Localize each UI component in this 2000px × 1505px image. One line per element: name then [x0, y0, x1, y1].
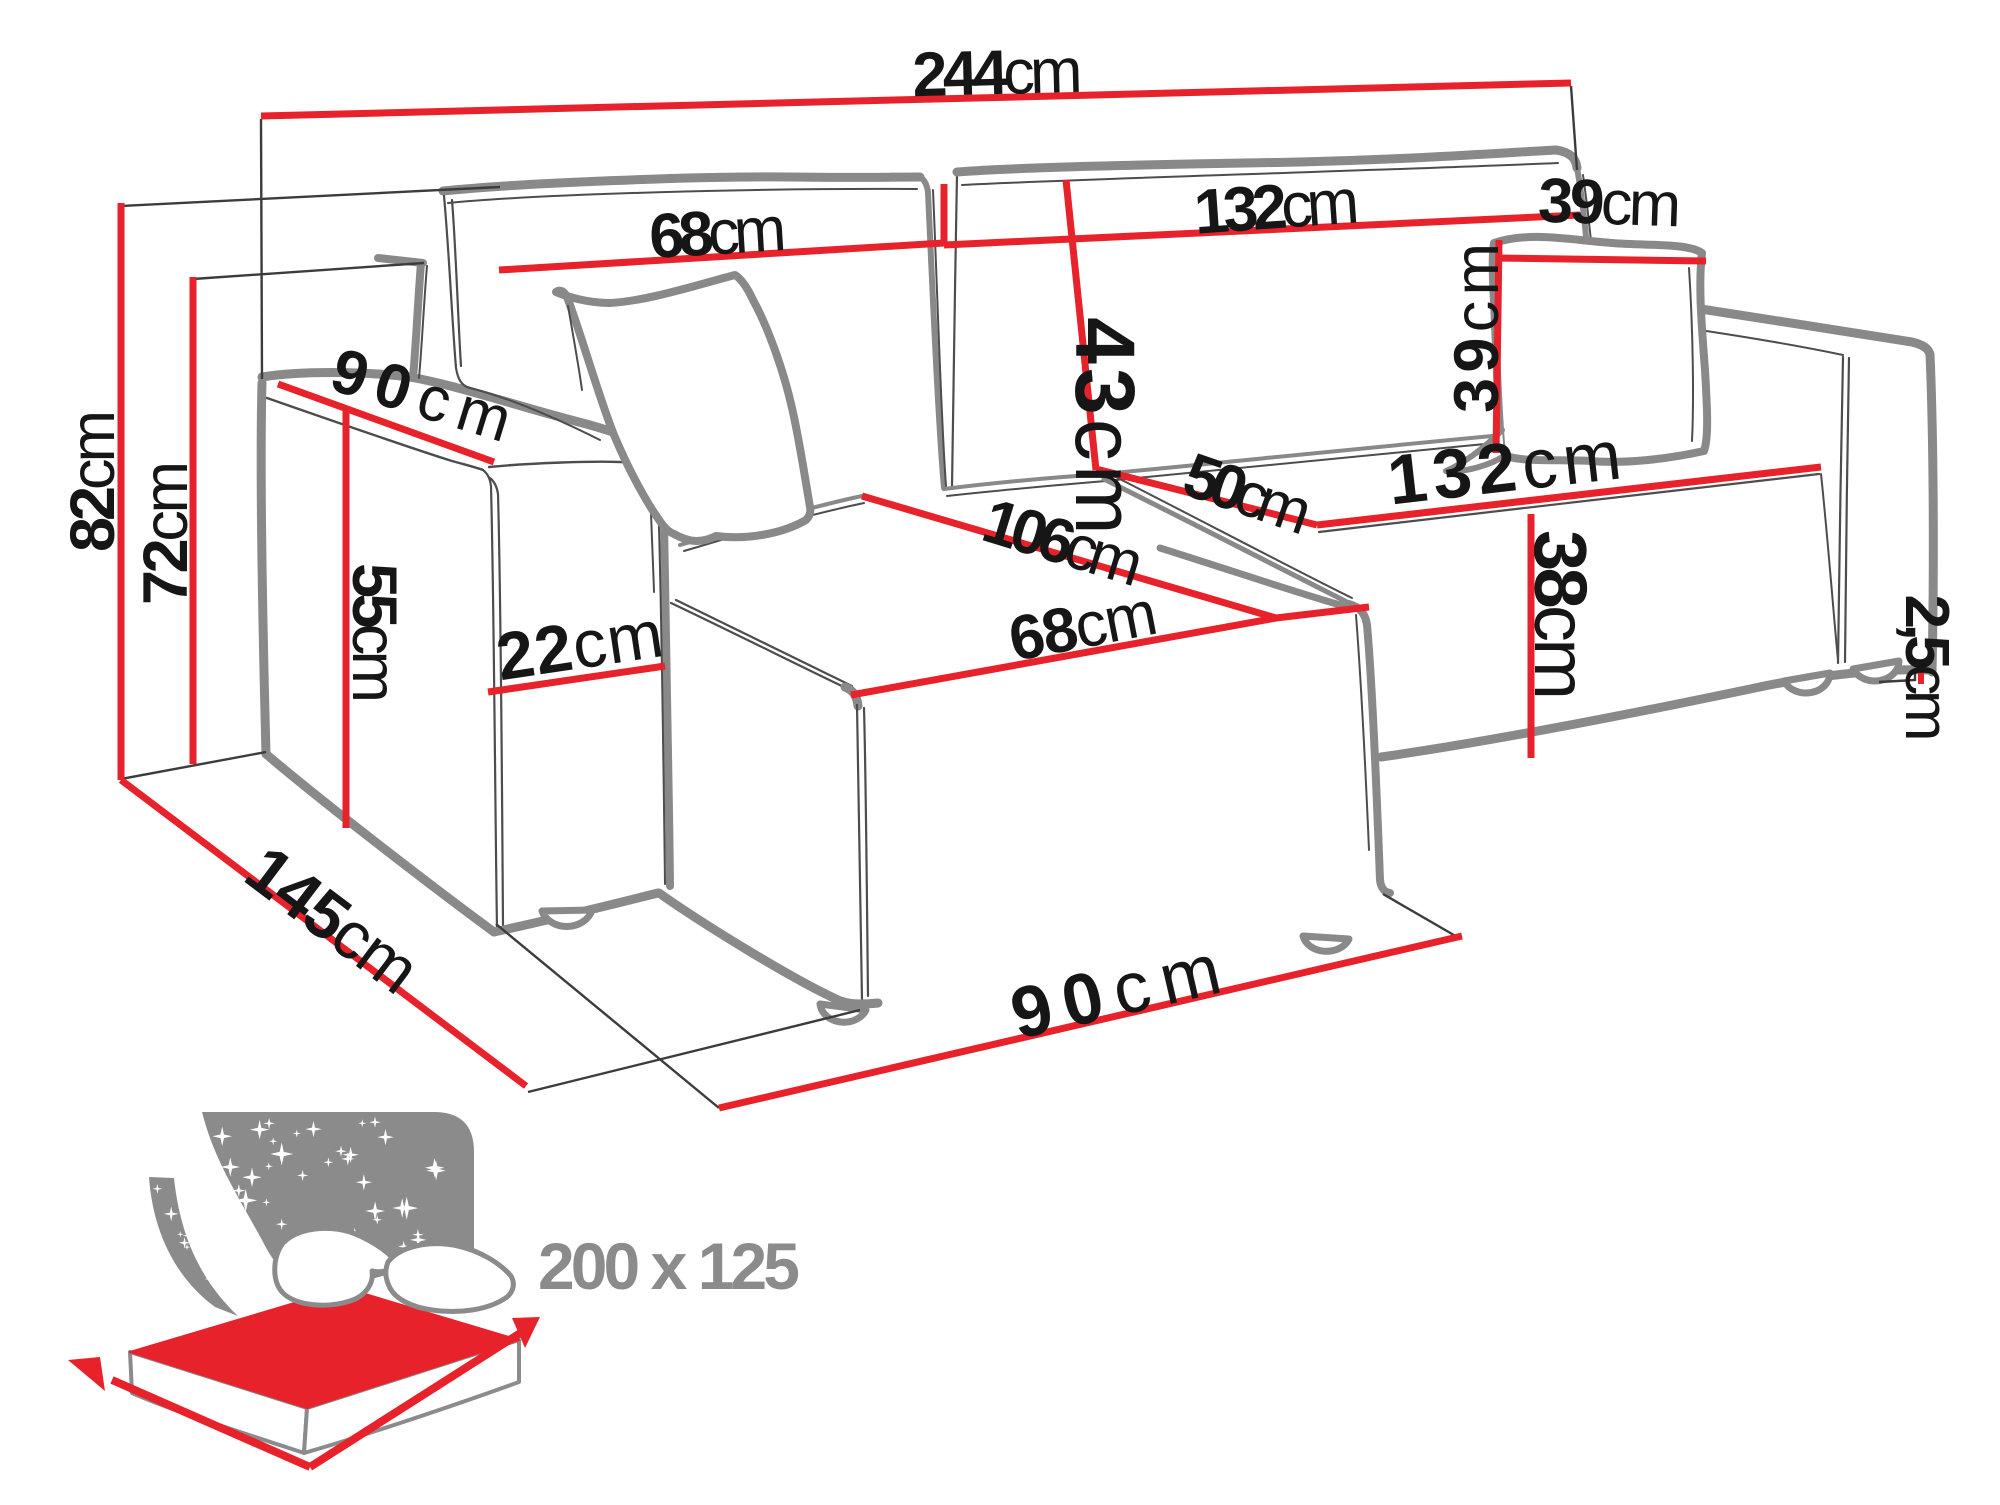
svg-text:82cm: 82cm: [58, 410, 128, 552]
svg-text:2,5cm: 2,5cm: [1892, 595, 1961, 742]
svg-text:200 x 125: 200 x 125: [538, 1229, 800, 1303]
svg-text:68cm: 68cm: [647, 194, 788, 272]
svg-text:132cm: 132cm: [1192, 166, 1361, 247]
svg-text:55cm: 55cm: [339, 563, 409, 703]
svg-text:72cm: 72cm: [131, 461, 201, 605]
svg-text:39cm: 39cm: [1442, 243, 1512, 413]
svg-text:39cm: 39cm: [1537, 166, 1682, 241]
svg-text:43cm: 43cm: [1058, 317, 1152, 538]
svg-text:244cm: 244cm: [912, 36, 1084, 110]
svg-text:38cm: 38cm: [1519, 530, 1602, 700]
